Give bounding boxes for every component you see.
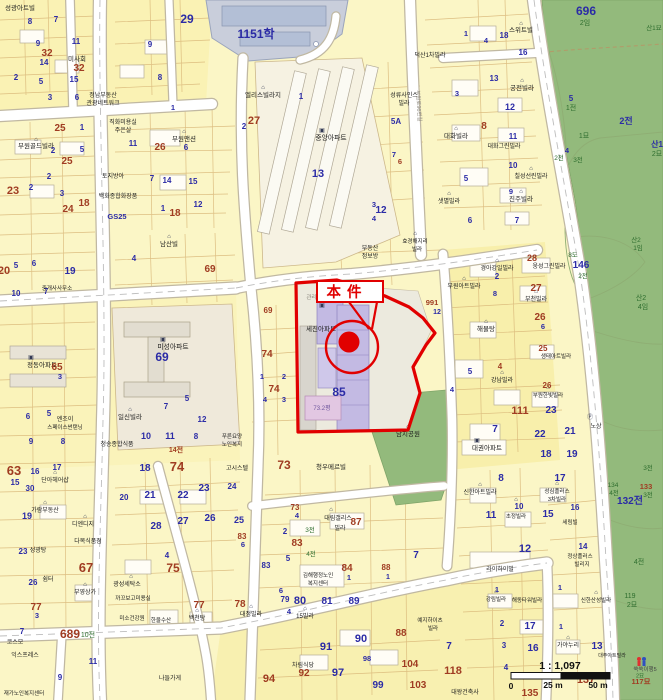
map-label: 77 [193,600,205,611]
map-label: 1 [558,583,562,592]
map-label: 83 [262,561,271,570]
map-label: 정남부동산 [89,91,117,99]
map-label: 강남빌라 [491,376,514,384]
apartment-icon: ▣ [319,303,325,309]
map-label: 7 [392,150,396,159]
map-label: 백천탕 [189,614,206,622]
map-label: 미사회 [68,54,86,63]
map-label: 16 [519,48,528,57]
map-label: 푸른요양 [222,432,242,440]
map-label: 1 [347,573,351,582]
map-label: 부원한빛빌라 [533,391,563,399]
scale-bar-fill [561,673,611,680]
map-label: 23 [545,405,557,416]
map-label: 111 [511,405,528,417]
map-label: 5 [14,261,19,270]
map-label: 김해행정노인 [303,571,333,579]
map-label: 78 [234,599,246,610]
map-label: 146 [573,260,590,271]
map-label: 미소건강원 [119,614,144,622]
map-label: 2묘 [652,150,663,158]
map-label: 6 [184,143,189,152]
map-label: 3전 [573,155,583,164]
building-icon: ⌂ [566,635,570,641]
map-label: 3차빌라 [548,495,566,503]
map-label: 69 [264,306,273,315]
map-label: 17 [554,473,566,484]
map-label: 26 [29,578,38,587]
map-label: 18 [500,31,509,40]
map-label: 132전 [617,494,643,507]
logo-subtext: 2묘 [636,673,644,680]
map-label: 1 [260,372,264,381]
map-label: 궁전빌라 [510,83,534,92]
map-label: 9 [509,187,513,196]
map-label: 대권아파트 [472,443,502,452]
map-label: 한울수산 [151,616,171,624]
map-label: 8 [61,437,66,446]
map-label: 6 [541,322,545,331]
map-label: 119 [624,593,635,600]
building-icon: ⌂ [249,604,253,610]
map-label: 8 [493,289,497,298]
map-label: 16 [571,503,580,512]
map-label: 9 [36,39,41,48]
map-label: 4 [165,551,170,560]
building-icon: ⌂ [478,482,482,488]
map-label: 12 [519,543,531,555]
pond-icon [314,42,319,47]
map-label: 73 [277,458,291,472]
map-label: 웅성그린빌라 [532,262,566,270]
map-label: 75 [166,561,180,575]
map-label: 11 [486,510,497,521]
map-label: 21 [144,490,156,501]
map-label: 라이하이빌 [486,565,514,573]
map-label: 991 [426,298,439,307]
map-label: 11 [89,657,98,666]
map-label: 81 [321,596,333,607]
map-label: 예지하이츠 [417,616,442,624]
map-label: 단아헤어샵 [41,476,69,484]
map-label: 30 [26,484,35,493]
map-label: 다복식품점 [74,537,102,545]
annotation-label: 本件 [327,283,368,301]
map-label: 20 [0,265,10,277]
subject-marker-dot [339,332,360,353]
map-label: 25 [539,344,548,353]
map-label: 정상플러스 [567,552,592,560]
map-label: 재가노인복지센터 [4,689,44,697]
map-label: 74 [170,459,185,474]
map-label: 10 [141,431,151,441]
map-label: 118 [444,665,462,677]
map-label: 8 [194,432,199,441]
map-label: 칠성선린빌라 [514,172,548,180]
building-icon: ⌂ [413,231,417,237]
map-label: 11 [509,132,518,141]
map-label: 9 [148,40,153,49]
map-label: 대정빌라 [240,610,263,618]
logo-text: 쑥쑥이행5 [633,665,656,673]
map-label: 부동산 [362,244,379,252]
map-label: 5 [39,77,44,86]
map-label: 10 [12,289,21,298]
map-label: 샛별빌라 [438,197,461,205]
map-label: 코스모 [7,639,24,646]
map-label: 3 [372,200,376,209]
map-label: 경아강일빌라 [480,264,514,272]
map-label: 2 [282,372,286,381]
map-label: 88 [382,563,391,572]
map-label: 강림빌라 [486,595,506,603]
building-icon: ⌂ [329,507,333,513]
map-label: 8 [498,473,504,484]
map-label: 1 [464,29,468,38]
map-label: 98 [363,654,371,663]
map-label: 73.2평 [313,404,330,412]
map-label: 5 [286,554,291,563]
map-label: 26 [204,513,216,524]
map-label: 5 [468,367,473,376]
map-label: 부원맨션 [172,134,196,143]
map-label: 20 [120,493,129,502]
building-icon: ⌂ [83,582,87,588]
map-label: 97 [332,667,344,679]
map-label: 2전 [554,153,564,162]
map-label: 3 [58,372,62,381]
map-label: 노인복지 [222,440,242,448]
map-label: 15 [189,177,198,186]
map-label: 18 [169,208,181,219]
map-label: 14전 [169,445,183,454]
building-icon: ⌂ [454,126,458,132]
map-label: 직화미용실 [109,118,137,126]
map-label: 5 [464,174,469,183]
building-icon: ⌂ [520,78,524,84]
map-label: 1 [495,585,499,594]
map-label: 1 [559,622,563,631]
map-label: 4임 [638,303,648,311]
map-label: 초정빌라 [506,512,526,520]
map-label: 15 [542,509,554,520]
map-label: 103 [410,680,427,691]
map-label: 17 [53,463,62,472]
map-label: 8 [158,73,163,82]
map-label: 74 [268,384,280,395]
map-label: 3 [282,395,286,404]
scale-tick-0: 0 [509,681,514,691]
building-icon: ⌂ [484,319,488,325]
map-label: 세림빌 [562,518,577,526]
map-label: 2 [51,146,56,155]
map-label: 94 [263,673,276,685]
map-label: 12 [433,309,441,316]
map-label: 2전 [578,271,588,280]
map-label: 5 [569,94,574,103]
map-label: 5 [47,409,52,418]
map-label: 3 [455,89,459,98]
map-label: 성광탕 [30,546,47,554]
map-label: 1전 [566,103,576,112]
map-label: 노상 [590,422,602,430]
map-label: 9 [58,673,63,682]
map-label: 24 [228,482,237,491]
map-label: 8 [481,121,487,132]
building-icon: ⌂ [447,191,451,197]
map-label: 4 [498,362,503,371]
map-label: 18 [78,198,90,209]
map-label: 2묘 [627,601,638,609]
map-label: 산2 [631,235,641,244]
map-label: 해동타워빌라 [512,596,542,604]
map-label: 23 [7,185,19,197]
map-label: 91 [320,641,332,653]
map-label: 99 [372,680,384,691]
map-label: 청송종합식품 [100,440,134,448]
parking-icon: Ⓟ [587,413,593,421]
map-label: 2 [29,183,34,192]
map-label: 9 [29,437,34,446]
cadastral-map-screenshot: ▣▣▣▣▣⌂⌂⌂⌂⌂⌂⌂⌂⌂⌂⌂⌂⌂⌂⌂⌂⌂⌂⌂⌂⌂⌂⌂⌂⌂⌂⌂⌂⌂⌂⌂⌂⌂⌂Ⓟ… [0,0,663,700]
building-icon: ⌂ [129,574,133,580]
map-label: 88 [395,628,407,639]
apartment-icon: ▣ [160,337,166,343]
map-label: 1임 [633,244,643,252]
map-label: 6 [32,259,37,268]
map-label: 79 [281,595,290,604]
map-label: 10 [509,161,518,170]
map-label: 빌리지 [574,560,589,568]
map-label: 2 [14,73,19,82]
map-label: 빌라 [334,524,346,532]
building-icon: ⌂ [83,514,87,520]
map-label: 일신빌라 [118,412,142,421]
map-label: 1묘 [579,132,590,140]
map-label: 12 [198,415,207,424]
map-label: 17 [524,621,536,632]
map-label: 27 [530,283,542,294]
map-label: 696 [576,4,596,18]
map-label: 15 [70,75,79,84]
map-label: 135 [522,688,539,699]
map-label: 104 [402,659,419,670]
map-label: 빌라 [412,245,422,253]
building-icon: ⌂ [261,85,265,91]
map-label: 빌라 [428,624,438,632]
map-label: 18 [139,463,151,474]
map-label: 27 [177,516,189,527]
map-label: 2 [47,172,52,181]
map-label: 산1묘 [646,23,662,32]
map-label: 스페이스썬탠닝 [47,423,82,431]
map-label: 689 [60,627,80,641]
map-label: 134 [608,482,619,489]
map-label: 74 [261,349,273,360]
map-label: 13 [312,168,324,180]
map-label: 14 [163,176,172,185]
map-label: 엘리스빌라지 [245,90,281,99]
map-label: 11 [72,37,81,46]
map-label: 11 [165,431,175,441]
map-label: 16 [527,643,539,654]
map-label: 가야누리 [557,641,579,649]
map-label: 25 [54,123,66,134]
map-label: 1 [386,574,390,581]
apartment-icon: ▣ [28,355,34,361]
map-label: 빌라 [398,99,410,107]
map-label: 14 [579,542,588,551]
scale-tick-50: 50 m [588,680,608,690]
map-label: 10전 [81,630,95,639]
map-label: 2임 [580,19,590,27]
building-icon: ⌂ [529,166,533,172]
map-label: 133 [640,482,653,491]
map-canvas: ▣▣▣▣▣⌂⌂⌂⌂⌂⌂⌂⌂⌂⌂⌂⌂⌂⌂⌂⌂⌂⌂⌂⌂⌂⌂⌂⌂⌂⌂⌂⌂⌂⌂⌂⌂⌂⌂Ⓟ… [0,0,663,700]
map-label: 92 [298,668,310,679]
building-icon: ⌂ [43,500,47,506]
map-label: 83 [291,538,303,549]
map-label: 26 [543,381,552,390]
map-label: 18 [540,449,552,460]
map-label: 대왕건축사 [451,688,479,696]
apartment-icon: ▣ [474,438,480,444]
building-icon: ⌂ [495,258,499,264]
map-label: 21 [564,426,576,437]
map-label: 4전 [634,557,644,566]
map-label: 29 [180,12,194,26]
map-label: GS25 [107,212,126,221]
map-label: 성심플러스 [544,487,569,495]
map-label: 대림갤리스 [324,514,352,522]
map-label: 7 [54,15,59,24]
building-icon: ⌂ [594,590,598,596]
map-label: 25 [234,515,244,525]
map-label: 광성세탁소 [113,580,141,588]
map-label: 쉼터 [42,575,53,583]
map-label: 산1 [651,139,663,149]
map-label: 7 [150,174,155,183]
map-label: 89 [348,596,360,607]
map-label: 토지방아 [102,172,125,180]
map-label: 대화빌라 [444,131,468,140]
map-label: 7 [20,627,25,636]
map-label: 90 [355,633,367,645]
map-label: 5 [80,145,85,154]
map-label: 2 [495,272,500,281]
scale-tick-25: 25 m [543,680,563,690]
map-label: 7 [446,641,452,652]
map-label: 4 [132,254,137,263]
map-label: 12 [375,205,387,216]
map-label: 효경해지리 [402,237,427,245]
building-icon: ⌂ [128,407,132,413]
map-label: 7 [413,550,419,561]
map-label: 12 [194,200,203,209]
map-label: 7 [164,402,169,411]
map-label: 부영상가 [74,588,97,596]
map-label: 부원골드빌라 [18,141,54,150]
map-label: 14 [40,58,49,67]
map-label: 4 [504,663,509,672]
map-label: 63 [7,463,21,478]
map-label: 6 [468,216,473,225]
map-label: 13 [490,74,499,83]
map-label: 나들가게 [159,674,181,682]
map-label: 28 [150,521,162,532]
map-label: 3 [35,611,39,620]
map-label: 익스프레스 [11,651,39,659]
map-label: 5 [185,394,190,403]
map-label: 1 [171,103,175,112]
building-icon: ⌂ [519,189,523,195]
map-label: 3 [502,641,507,650]
map-label: 1151학 [237,26,274,41]
map-label: 12 [505,102,515,112]
map-label: 69 [204,264,216,275]
map-label: 성광아트빌 [5,3,35,12]
map-label: 6 [75,93,80,102]
map-label: 8 [28,17,33,26]
map-label: 생태아트빌라 [541,352,571,360]
map-label: 22 [177,490,189,501]
map-label: 복지센터 [308,579,328,587]
map-label: 3 [48,93,53,102]
map-label: 산2 [636,293,646,302]
map-label: 대주아트빌라 [598,652,626,659]
map-label: 10 [515,502,524,511]
map-label: 해물탕 [477,324,495,333]
map-label: 1 [299,92,304,101]
map-label: 까꼬보고미용실 [115,594,150,602]
map-label: 신한산성빌라 [581,596,611,604]
map-label: 2전 [619,115,632,126]
building-icon: ⌂ [182,129,186,135]
map-label: 1 [80,123,85,132]
map-label: 부원아트빌라 [447,282,481,290]
map-label: 23 [198,483,210,494]
map-label: 대화그린빌라 [487,142,521,150]
map-label: 주은살 [115,126,132,134]
map-label: 28 [527,253,537,263]
map-label: 19 [566,449,578,460]
map-label: 3전 [305,525,315,534]
map-label: 중개사사무소 [42,284,72,292]
map-label: 3전 [643,490,653,499]
map-label: 6 [26,412,31,421]
map-label: 87 [350,517,362,528]
map-label: 19 [64,266,76,277]
map-label: 6 [279,586,283,595]
map-label: 15빌라 [296,612,314,620]
map-label: 중앙아파트 [315,133,346,142]
map-label: 7 [492,424,498,435]
map-label: 25 [61,156,73,167]
map-label: 백화종합화장품 [99,192,138,200]
building-icon: ⌂ [167,234,171,240]
map-label: 가람부동산 [31,506,59,514]
map-label: 남산빌 [160,239,178,248]
map-label: 15 [11,478,20,487]
map-label: 6 [241,540,245,549]
apartment-icon: ▣ [319,128,325,134]
map-label: 엔조이 [57,415,74,423]
map-label: 13 [591,641,603,652]
map-label: 24 [62,204,74,215]
map-label: 2 [283,527,288,536]
map-label: 69 [155,350,169,364]
map-label: 11 [129,139,138,148]
